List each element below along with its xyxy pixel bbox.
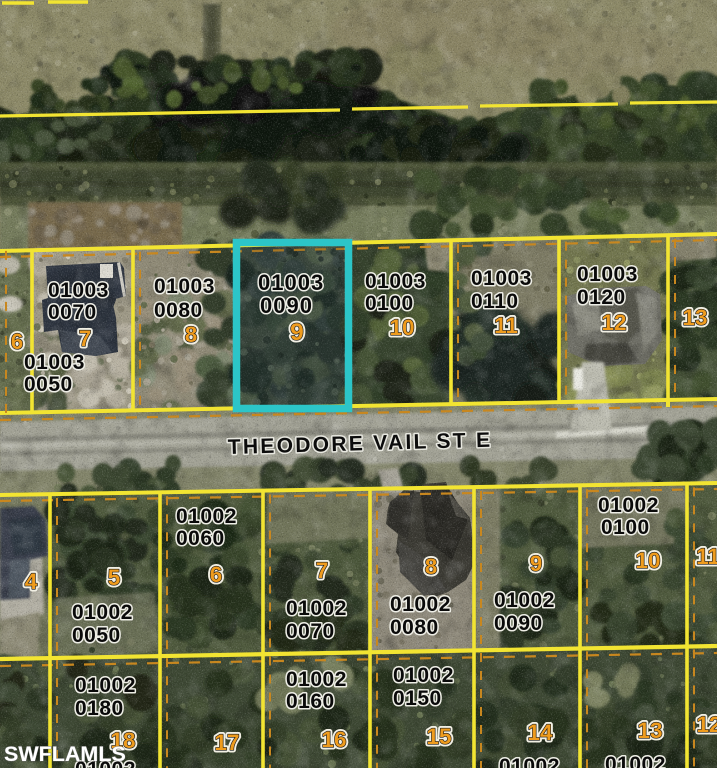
svg-text:7: 7 <box>79 326 92 351</box>
svg-text:0090: 0090 <box>260 293 313 318</box>
svg-text:11: 11 <box>696 544 717 569</box>
svg-text:17: 17 <box>214 730 239 755</box>
svg-text:8: 8 <box>185 322 198 347</box>
svg-text:0080: 0080 <box>154 299 203 322</box>
svg-text:11: 11 <box>494 313 518 338</box>
svg-text:5: 5 <box>108 565 121 590</box>
svg-text:01003: 01003 <box>154 275 215 298</box>
svg-text:13: 13 <box>637 718 662 743</box>
svg-text:0050: 0050 <box>72 624 121 647</box>
svg-text:0090: 0090 <box>494 612 543 635</box>
svg-text:0150: 0150 <box>393 687 442 710</box>
svg-text:01002: 01002 <box>499 755 560 768</box>
svg-text:10: 10 <box>635 548 660 573</box>
svg-text:14: 14 <box>527 720 553 745</box>
svg-text:0070: 0070 <box>48 301 97 324</box>
svg-text:7: 7 <box>316 558 329 583</box>
svg-text:0180: 0180 <box>75 697 124 720</box>
svg-text:0120: 0120 <box>577 286 626 309</box>
svg-text:01002: 01002 <box>286 668 347 691</box>
svg-text:8: 8 <box>425 554 438 579</box>
svg-text:01003: 01003 <box>48 279 109 302</box>
svg-text:SWFLAMLS: SWFLAMLS <box>4 742 126 766</box>
svg-text:01002: 01002 <box>605 753 666 768</box>
svg-text:12: 12 <box>601 310 626 335</box>
svg-text:01003: 01003 <box>258 270 324 295</box>
svg-text:0100: 0100 <box>601 516 650 539</box>
svg-text:13: 13 <box>682 305 707 330</box>
svg-text:01002: 01002 <box>75 674 136 697</box>
svg-text:0110: 0110 <box>471 290 519 313</box>
svg-text:01003: 01003 <box>577 263 638 286</box>
svg-text:01002: 01002 <box>494 589 555 612</box>
svg-text:01003: 01003 <box>471 267 532 290</box>
svg-text:01002: 01002 <box>598 494 659 517</box>
svg-text:4: 4 <box>25 569 38 594</box>
svg-text:0160: 0160 <box>286 690 335 713</box>
svg-text:0080: 0080 <box>390 616 439 639</box>
svg-text:01002: 01002 <box>390 593 451 616</box>
svg-text:9: 9 <box>530 551 543 576</box>
svg-text:9: 9 <box>290 319 304 346</box>
svg-text:01002: 01002 <box>393 664 454 687</box>
svg-text:0050: 0050 <box>24 373 73 396</box>
svg-text:0100: 0100 <box>365 292 414 315</box>
svg-text:6: 6 <box>11 329 24 354</box>
svg-text:01002: 01002 <box>286 597 347 620</box>
svg-text:15: 15 <box>426 724 451 749</box>
svg-text:12: 12 <box>696 712 717 737</box>
svg-text:16: 16 <box>321 727 346 752</box>
svg-text:01003: 01003 <box>24 351 85 374</box>
svg-text:10: 10 <box>389 315 414 340</box>
svg-text:01002: 01002 <box>176 505 237 528</box>
svg-text:0060: 0060 <box>176 527 225 550</box>
svg-text:01002: 01002 <box>72 601 133 624</box>
svg-text:0070: 0070 <box>286 620 335 643</box>
svg-text:6: 6 <box>210 562 223 587</box>
svg-text:01003: 01003 <box>365 270 426 293</box>
